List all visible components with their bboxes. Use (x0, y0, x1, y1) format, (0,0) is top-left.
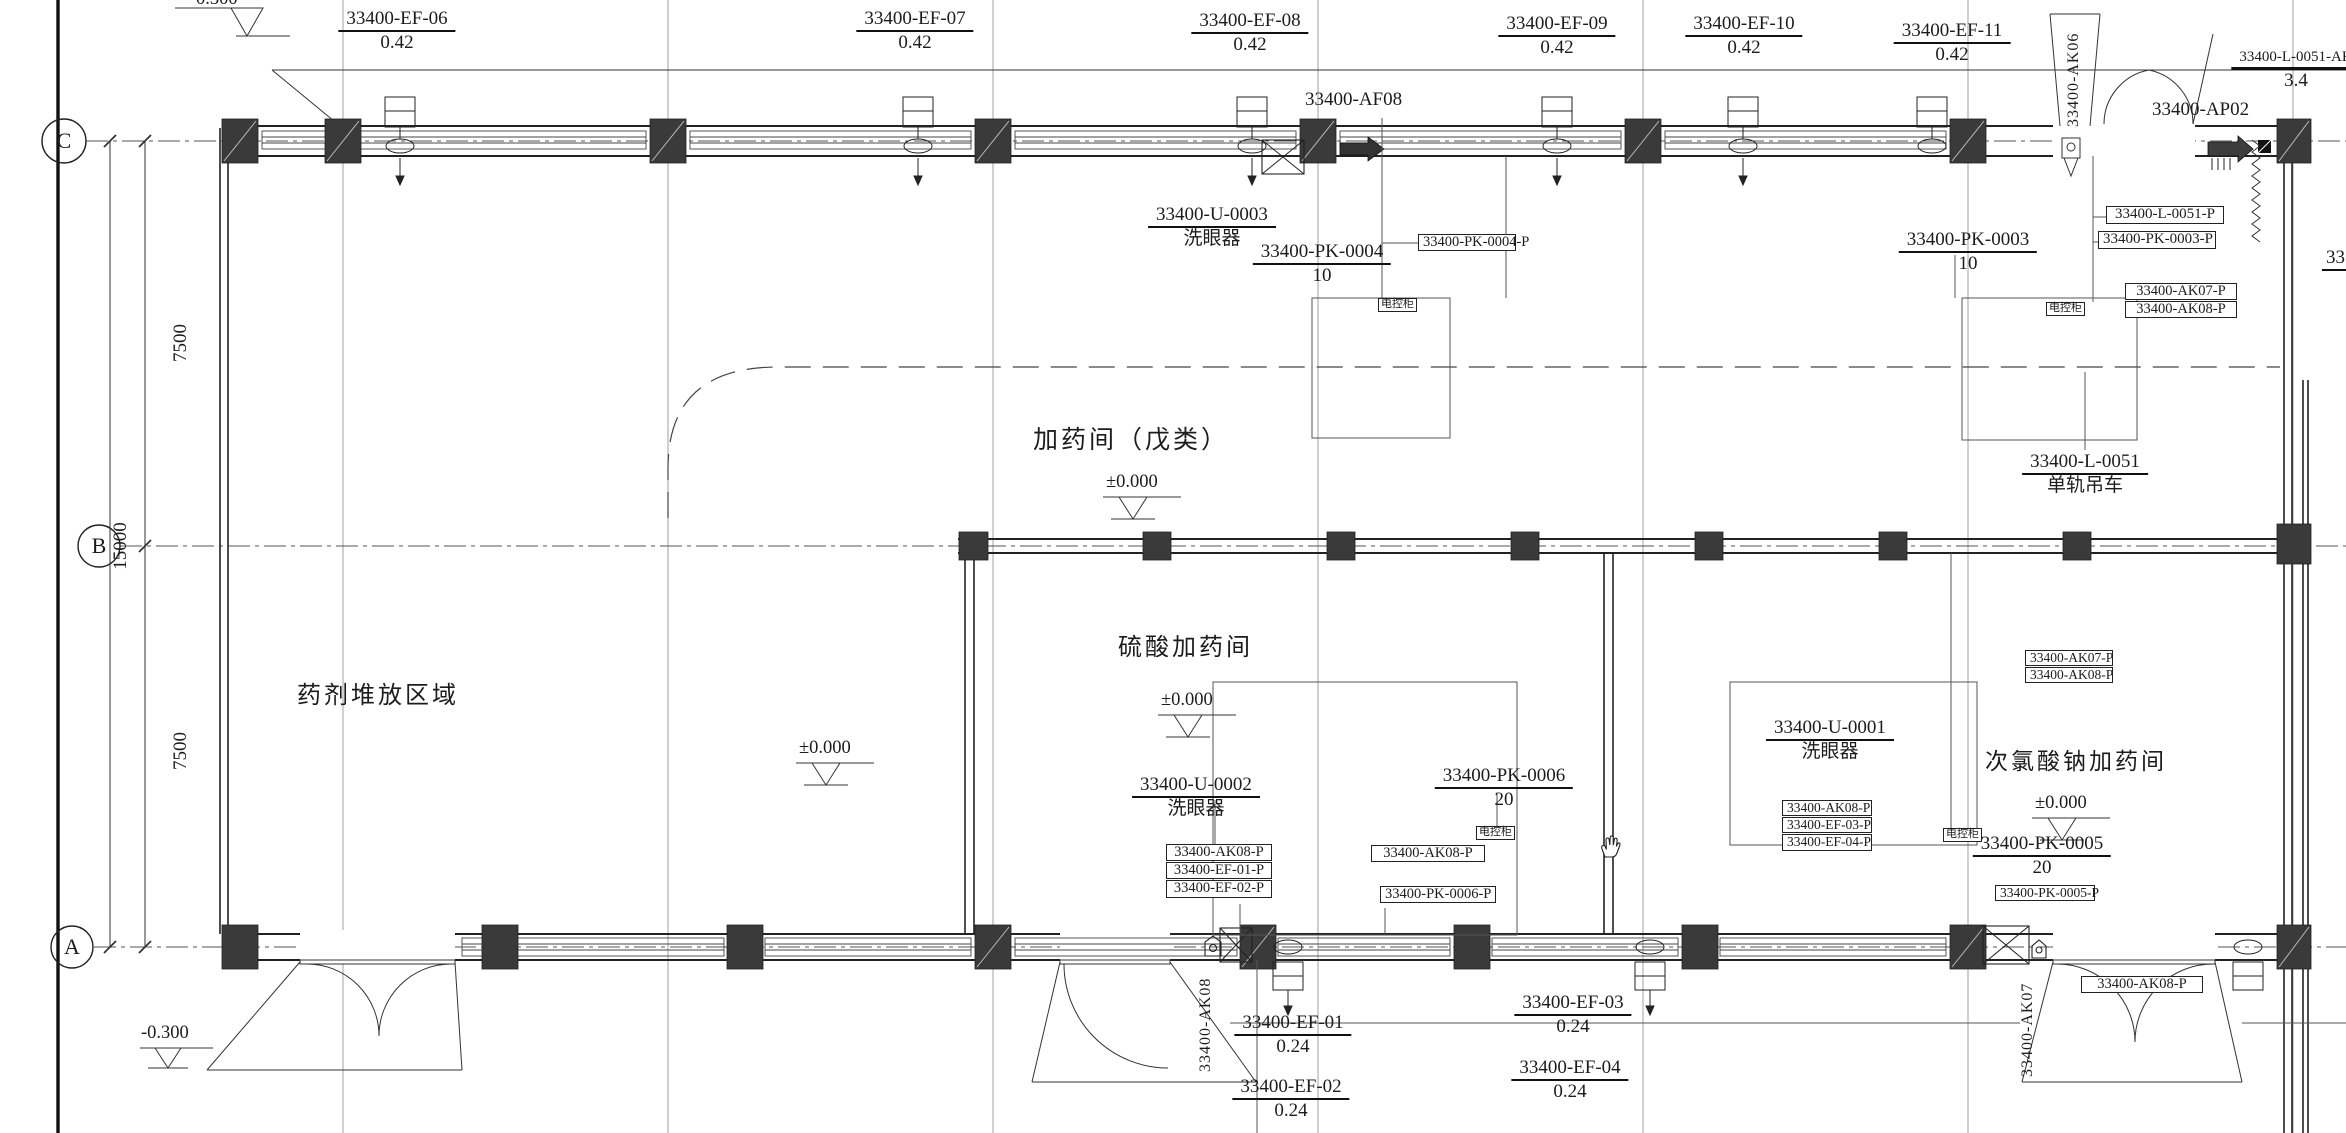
dim-7500-lower: 7500 (171, 732, 191, 770)
level-hypochlorite: ±0.000 (2035, 794, 2087, 813)
level-dosing-main: ±0.000 (1106, 473, 1158, 492)
box-panel-sulfuric: 电控柜 (1476, 826, 1515, 840)
tag-ef-08: 33400-EF-080.42 (1191, 11, 1308, 55)
windows-top (262, 131, 1946, 149)
tag-ef-07: 33400-EF-070.42 (856, 9, 973, 53)
tag-u0002: 33400-U-0002洗眼器 (1132, 775, 1260, 819)
label-ap02: 33400-AP02 (2152, 100, 2249, 120)
box-pk0003p: 33400-PK-0003-P (2098, 231, 2216, 249)
box-ak08p-door: 33400-AK08-P (2081, 976, 2203, 993)
box-panel-right: 电控柜 (2046, 302, 2085, 316)
level-top-clipped: 0.300 (196, 0, 238, 9)
room-dosing-main: 加药间（戊类） (1033, 428, 1229, 454)
tag-l0051-monorail: 33400-L-0051单轨吊车 (2022, 452, 2148, 496)
tag-ef-06: 33400-EF-060.42 (338, 9, 455, 53)
tag-ef-09: 33400-EF-090.42 (1498, 14, 1615, 58)
wall-right (2284, 156, 2308, 1133)
box-ak07p-ak08p-upper: 33400-AK07-P 33400-AK08-P (2125, 283, 2237, 318)
box-l0051p: 33400-L-0051-P (2106, 206, 2224, 224)
level-chemical-storage: ±0.000 (799, 739, 851, 758)
tag-l0051-ak: 33400-L-0051-AK3.4 (2231, 50, 2346, 91)
room-chemical-storage: 药剂堆放区域 (297, 684, 459, 709)
door-left (207, 960, 462, 1070)
label-ak08-vertical: 33400-AK08 (1198, 972, 1215, 1072)
tag-pk0006: 33400-PK-000620 (1435, 766, 1573, 810)
tag-ef-02: 33400-EF-020.24 (1232, 1077, 1349, 1121)
tag-pk0004: 33400-PK-000410 (1253, 242, 1391, 286)
room-hypochlorite: 次氯酸钠加药间 (1985, 750, 2167, 774)
level-sulfuric: ±0.000 (1161, 691, 1213, 710)
tag-u0001: 33400-U-0001洗眼器 (1766, 718, 1894, 762)
grid-bubble-A: A (64, 935, 80, 958)
label-partial-right: 33 (2322, 248, 2346, 271)
box-pk0006p: 33400-PK-0006-P (1380, 886, 1496, 903)
box-panel-top: 电控柜 (1378, 298, 1417, 312)
grid-bubbles (42, 119, 120, 968)
room-sulfuric: 硫酸加药间 (1118, 636, 1253, 661)
wall-partitions (965, 553, 1613, 934)
tag-ef-11: 33400-EF-110.42 (1894, 21, 2011, 65)
box-ak07p-ak08p-right: 33400-AK07-P 33400-AK08-P (2025, 650, 2113, 683)
a-wall-louvers (1205, 926, 2046, 964)
tag-ef-04: 33400-EF-040.24 (1511, 1058, 1628, 1102)
tag-ef-01: 33400-EF-010.24 (1234, 1013, 1351, 1057)
grid-bubble-B: B (92, 534, 107, 557)
tag-pk0003: 33400-PK-000310 (1899, 230, 2037, 274)
label-ak07-vertical: 33400-AK07 (2020, 972, 2037, 1077)
box-stack-ef01-ef02: 33400-AK08-P 33400-EF-01-P 33400-EF-02-P (1166, 844, 1272, 898)
grid-bubble-C: C (57, 129, 72, 152)
dim-7500-upper: 7500 (171, 324, 191, 362)
label-af08: 33400-AF08 (1305, 90, 1402, 110)
label-ak06-vertical: 33400-AK06 (2066, 22, 2083, 127)
tag-pk0005: 33400-PK-000520 (1973, 834, 2111, 878)
cad-drawing-canvas[interactable]: C B A 7500 15000 7500 33400-EF-060.42 33… (0, 0, 2346, 1133)
door-center (1032, 960, 1256, 1082)
box-ak08p-sulfuric: 33400-AK08-P (1371, 845, 1485, 862)
level-minus-300: -0.300 (141, 1024, 189, 1043)
tag-ef-10: 33400-EF-100.42 (1685, 14, 1802, 58)
dim-15000: 15000 (111, 522, 131, 570)
vertical-grid-lines (343, 0, 2293, 1133)
wall-left (220, 128, 228, 934)
tag-ef-03: 33400-EF-030.24 (1514, 993, 1631, 1037)
floor-plan-linework (0, 0, 2346, 1133)
mouse-cursor-hand (1597, 833, 1623, 859)
box-pk0004p: 33400-PK-0004-P (1418, 234, 1516, 251)
box-pk0005p: 33400-PK-0005-P (1995, 885, 2095, 901)
box-stack-ef03-ef04: 33400-AK08-P 33400-EF-03-P 33400-EF-04-P (1782, 800, 1872, 851)
